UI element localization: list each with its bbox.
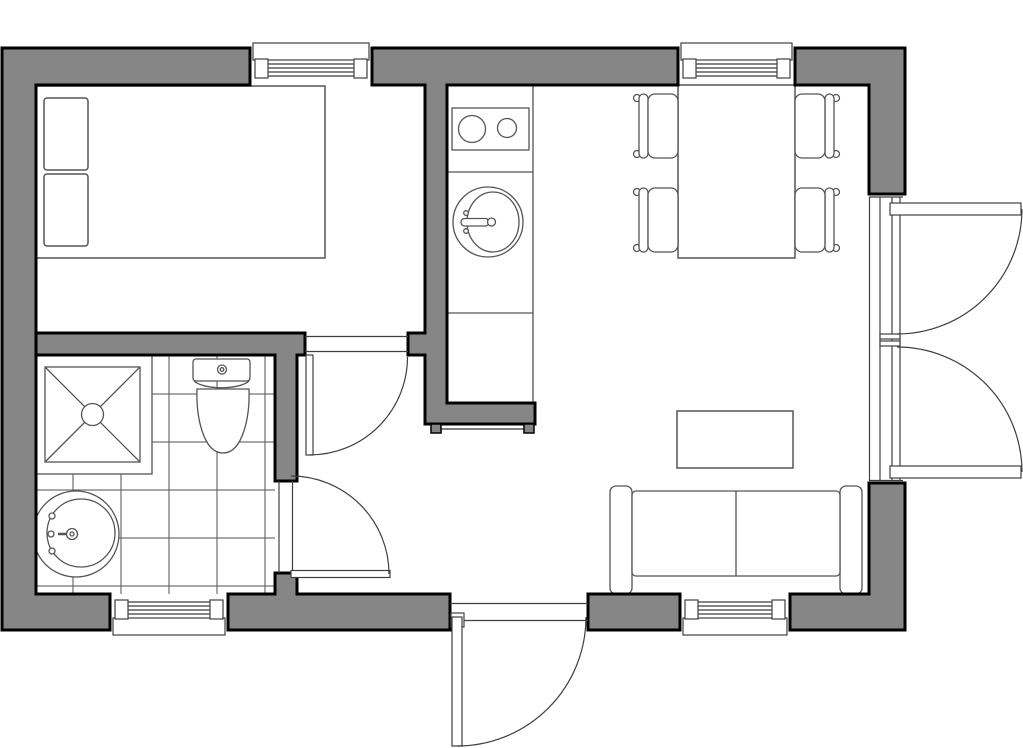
entrance-door-leaf (452, 617, 462, 746)
doors-layer (279, 197, 1022, 746)
window-jamb (683, 59, 696, 78)
dining-window (681, 43, 792, 78)
bathroom-window (113, 600, 225, 635)
bathroom-door-leaf (291, 571, 390, 578)
chair-seat (648, 188, 678, 252)
bedroom-door-swing (310, 357, 408, 455)
peninsula-cap (524, 424, 534, 433)
pillow (44, 174, 88, 246)
window-jamb (777, 59, 790, 78)
burner-large (459, 116, 486, 143)
window-jamb (115, 600, 128, 619)
window-jamb (772, 600, 785, 619)
sofa (610, 486, 862, 594)
bedroom-window (253, 43, 369, 78)
toilet-flush-button (218, 365, 227, 374)
sink-faucet (67, 529, 78, 540)
chair-backrest (639, 94, 648, 158)
shower-drain (82, 404, 104, 426)
window-glazing (128, 602, 210, 614)
window-glazing (696, 64, 777, 76)
bedroom-door-leaf (306, 355, 313, 455)
shower (36, 355, 152, 474)
window-jamb (354, 59, 367, 78)
kitchen-counter-group (447, 85, 533, 403)
chair-bottom-left (634, 188, 679, 252)
chair-seat (648, 94, 678, 158)
bedroom-door-frame (305, 337, 408, 352)
window-sill (681, 43, 792, 60)
french-doors (869, 197, 1022, 481)
burner-small (498, 119, 517, 138)
bathroom-door-frame (279, 481, 293, 573)
entrance-threshold (450, 604, 588, 621)
french-door-stile (880, 334, 900, 339)
dining-table (678, 85, 795, 258)
living-window (683, 600, 787, 635)
toilet (193, 359, 250, 453)
wall-bottom-between-door-and-window (588, 594, 680, 630)
bathroom-door-swing (291, 476, 389, 574)
sink-dot (49, 548, 55, 554)
bathroom-sink (33, 491, 119, 577)
chair-backrest (639, 188, 648, 252)
chair-backrest (825, 188, 834, 252)
bedroom-door (305, 337, 408, 456)
kitchen-faucet-knob (488, 218, 496, 226)
window-jamb (210, 600, 223, 619)
toilet-tank-curve (194, 381, 249, 388)
chair-seat (795, 94, 825, 158)
sink-dot (48, 531, 54, 537)
french-door-leaf-top (890, 203, 1021, 215)
sink-bowl (47, 499, 115, 567)
window-sill (113, 618, 225, 635)
floor-plan (0, 0, 1023, 748)
window-sill (683, 618, 787, 635)
window-sill (253, 43, 369, 60)
window-glazing (268, 64, 354, 76)
french-door-swing-top (897, 209, 1022, 334)
kitchen-faucet (461, 219, 489, 227)
sofa-armrest-right (840, 486, 862, 594)
window-jamb (255, 59, 268, 78)
toilet-bowl (197, 389, 249, 453)
entrance-door-swing (457, 617, 586, 746)
chair-backrest (825, 94, 834, 158)
pillow (44, 98, 88, 170)
entrance-door (450, 604, 588, 747)
kitchen-sink-dot (464, 229, 469, 234)
sofa-armrest-left (610, 486, 632, 594)
bathroom-door (279, 476, 390, 578)
french-door-stile (880, 341, 900, 346)
wall-bottom-middle-with-bathroom-stub (228, 573, 450, 630)
window-glazing (698, 602, 772, 614)
peninsula-cap (431, 424, 441, 433)
sink-dot (49, 513, 55, 519)
kitchen-sink-dot (464, 211, 469, 216)
french-door-swing-bottom (897, 347, 1022, 472)
french-door-leaf-bottom (890, 466, 1021, 478)
chair-bottom-right (795, 188, 840, 252)
chair-top-right (795, 94, 840, 158)
coffee-table (677, 411, 793, 468)
chair-top-left (634, 94, 679, 158)
window-jamb (685, 600, 698, 619)
chair-seat (795, 188, 825, 252)
